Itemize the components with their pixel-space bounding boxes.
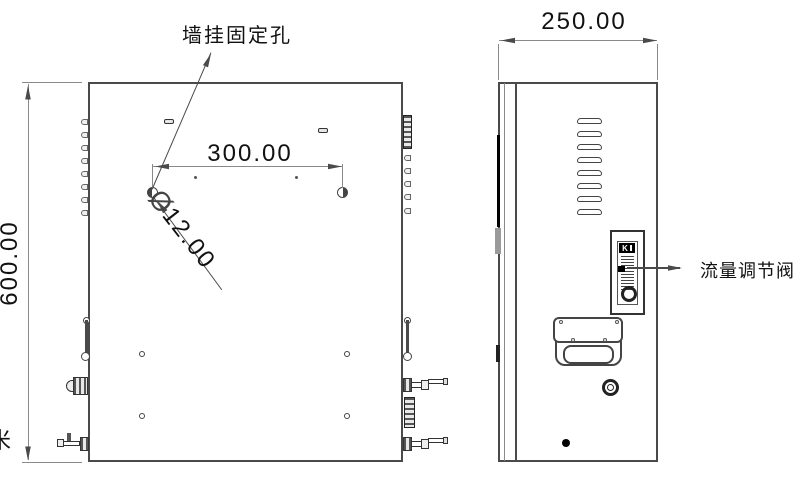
hinge-pin [81, 352, 90, 361]
door-edge-line [504, 83, 505, 461]
panel-hole [139, 413, 145, 419]
louver-tab [81, 197, 88, 203]
ribbed-connector [404, 397, 415, 428]
valve-fitting-lever [428, 379, 444, 384]
technical-drawing-page: K 600.00 300.00 250.00 墙挂固定孔 Ø 12.00 流量 [0, 0, 800, 484]
pilot-hole [194, 176, 197, 179]
flow-meter-logo-bar [630, 245, 632, 251]
panel-hole [344, 351, 350, 357]
wall-mount-hole-label: 墙挂固定孔 [182, 19, 292, 48]
louver-tab [81, 171, 88, 177]
dim-height-line [28, 84, 29, 460]
vent-louver [577, 144, 602, 150]
dim-arrow-icon [643, 37, 657, 44]
louver-tab [404, 168, 411, 174]
louver-tab [81, 119, 88, 125]
hinge-strip [495, 228, 501, 254]
louver-tab [81, 158, 88, 164]
screw-icon [559, 320, 563, 324]
louver-tab [404, 181, 411, 187]
vent-louver [577, 131, 602, 137]
cable-gland-nut [73, 377, 88, 395]
hinge-strip [496, 345, 500, 362]
dim-spacing-text: 300.00 [207, 140, 292, 168]
handle-backplate [553, 317, 623, 343]
louver-tab [404, 208, 411, 214]
louver-tab [404, 155, 411, 161]
front-view-panel [88, 82, 403, 462]
door-face-line [515, 83, 517, 461]
drain-hole [562, 439, 570, 447]
flow-valve-label: 流量调节阀 [700, 257, 795, 283]
pipe-fitting-pipe [63, 441, 80, 446]
valve-fitting-lever [428, 438, 444, 443]
vent-louver [577, 183, 602, 189]
hinge-pin [403, 352, 412, 361]
flow-meter-float [618, 266, 625, 272]
flow-meter-logo-text: K [622, 244, 629, 253]
dim-arrow-icon [501, 37, 515, 44]
dim-spacing-ext-right [342, 164, 343, 188]
vent-louver [577, 118, 602, 124]
hinge-strip [497, 135, 500, 227]
dim-depth-ext-left [498, 44, 499, 80]
dim-height-ext-bottom [22, 462, 82, 463]
panel-hole [139, 351, 145, 357]
valve-fitting-knob [443, 437, 448, 444]
vent-louver [577, 157, 602, 163]
dim-arrow-icon [25, 446, 32, 460]
vent-slot [318, 128, 328, 133]
screw-icon [571, 338, 575, 342]
vent-slot [164, 119, 174, 124]
leader-arrow-icon [668, 265, 682, 272]
handle-grip [563, 345, 614, 364]
dim-arrow-icon [25, 85, 32, 99]
louver-tab [81, 184, 88, 190]
flow-meter-scale [621, 256, 634, 290]
flow-valve-knob [621, 286, 637, 302]
dim-depth-ext-right [657, 44, 658, 80]
louver-tab [81, 210, 88, 216]
screw-icon [615, 320, 619, 324]
vent-louver [577, 196, 602, 202]
valve-fitting-knob [443, 378, 448, 385]
pilot-hole [295, 176, 298, 179]
leader-arrow-icon [202, 52, 214, 68]
dim-depth-text: 250.00 [541, 8, 626, 36]
vent-louver [577, 209, 602, 215]
vent-louver [577, 170, 602, 176]
panel-hole [344, 413, 350, 419]
mount-hole-right [337, 187, 348, 198]
screw-icon [603, 338, 607, 342]
pipe-fitting-flange [80, 437, 89, 451]
dim-height-ext-top [22, 82, 82, 83]
pipe-fitting-handle [67, 433, 71, 441]
hinge-icon [403, 115, 412, 149]
edge-clipped-label: 米 [0, 423, 13, 455]
round-fitting-center [607, 384, 614, 391]
louver-tab [404, 194, 411, 200]
louver-tab [81, 132, 88, 138]
dim-height-text: 600.00 [0, 220, 24, 305]
louver-tab [81, 145, 88, 151]
dim-depth-line [499, 40, 657, 41]
flow-meter-logo-badge: K [619, 243, 635, 253]
